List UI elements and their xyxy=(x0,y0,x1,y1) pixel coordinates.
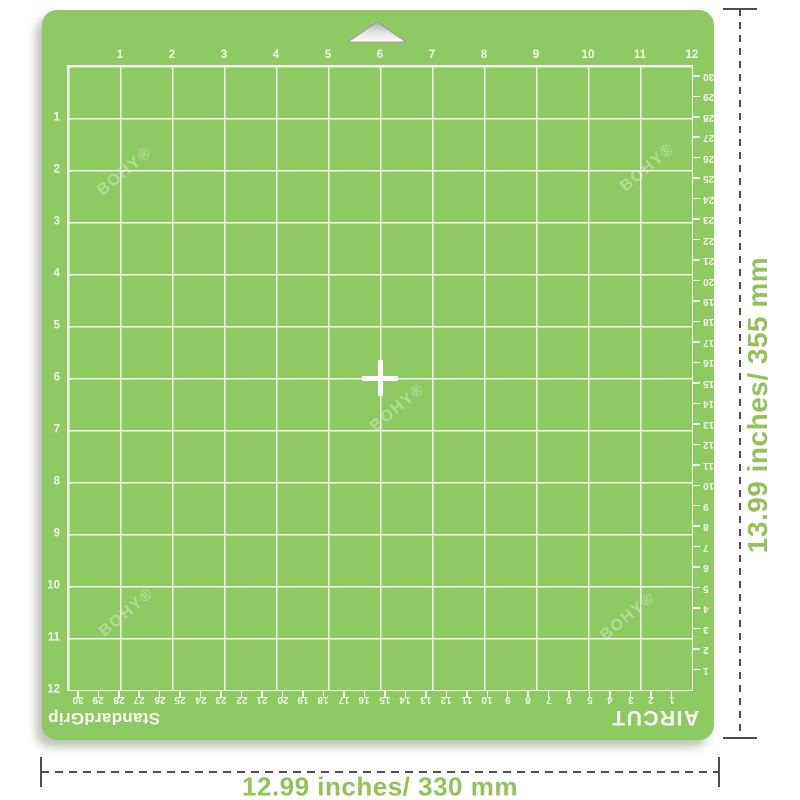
height-dimension-endcap xyxy=(723,737,757,739)
cm-tick xyxy=(692,444,700,446)
bottom-cm-label: 28 xyxy=(113,694,124,704)
top-ruler-label: 1 xyxy=(117,50,123,62)
left-ruler-label: 10 xyxy=(47,580,60,592)
bottom-cm-label: 3 xyxy=(628,694,634,704)
cm-tick xyxy=(692,485,700,487)
top-ruler-label: 6 xyxy=(377,50,383,62)
right-cm-label: 17 xyxy=(703,337,714,347)
bottom-cm-label: 7 xyxy=(546,694,552,704)
cm-tick xyxy=(692,300,700,302)
grip-type-label: StandardGrip xyxy=(48,708,160,728)
right-cm-label: 8 xyxy=(703,521,709,531)
right-cm-label: 30 xyxy=(703,71,714,81)
cm-tick xyxy=(692,525,700,527)
bottom-cm-label: 10 xyxy=(482,694,493,704)
right-cm-label: 1 xyxy=(703,665,709,675)
right-cm-label: 22 xyxy=(703,235,714,245)
left-ruler-label: 4 xyxy=(54,268,60,280)
bottom-cm-label: 20 xyxy=(277,694,288,704)
cm-tick xyxy=(692,321,700,323)
right-cm-label: 3 xyxy=(703,624,709,634)
right-cm-label: 15 xyxy=(703,378,714,388)
top-ruler-label: 12 xyxy=(686,50,699,62)
bottom-cm-label: 17 xyxy=(338,694,349,704)
right-cm-label: 5 xyxy=(703,583,709,593)
product-image: 1234567891011121234567891011121234567891… xyxy=(0,0,800,800)
top-ruler-label: 8 xyxy=(481,50,487,62)
width-dimension-label: 12.99 inches/ 330 mm xyxy=(242,772,518,800)
cm-tick xyxy=(692,280,700,282)
bottom-cm-label: 16 xyxy=(359,694,370,704)
cm-tick xyxy=(692,382,700,384)
bottom-cm-label: 19 xyxy=(297,694,308,704)
center-cross-icon xyxy=(378,360,383,396)
bottom-cm-label: 9 xyxy=(505,694,511,704)
cm-tick xyxy=(692,648,700,650)
bottom-cm-label: 30 xyxy=(72,694,83,704)
bottom-cm-label: 8 xyxy=(525,694,531,704)
left-ruler-label: 11 xyxy=(48,632,60,644)
right-cm-label: 16 xyxy=(703,357,714,367)
cutting-mat: 1234567891011121234567891011121234567891… xyxy=(42,10,714,740)
brand-logo: AIRCUT xyxy=(611,705,699,729)
right-cm-label: 12 xyxy=(703,439,714,449)
bottom-cm-label: 4 xyxy=(607,694,613,704)
right-cm-label: 14 xyxy=(703,398,714,408)
top-ruler-label: 9 xyxy=(533,50,539,62)
left-ruler-label: 2 xyxy=(54,164,60,176)
top-ruler-label: 7 xyxy=(429,50,435,62)
height-dimension-line xyxy=(739,9,741,738)
cm-tick xyxy=(692,464,700,466)
bottom-cm-label: 12 xyxy=(441,694,452,704)
left-ruler-label: 3 xyxy=(54,216,60,228)
cm-tick xyxy=(692,75,700,77)
left-ruler-label: 6 xyxy=(54,372,60,384)
top-ruler-label: 11 xyxy=(634,50,646,62)
right-cm-label: 27 xyxy=(703,132,714,142)
left-ruler-label: 1 xyxy=(54,112,60,124)
bottom-cm-label: 1 xyxy=(669,694,675,704)
alignment-notch-icon xyxy=(345,19,409,45)
bottom-cm-label: 26 xyxy=(154,694,165,704)
top-ruler-label: 3 xyxy=(221,50,227,62)
cm-tick xyxy=(692,607,700,609)
cm-tick xyxy=(692,157,700,159)
cm-tick xyxy=(692,505,700,507)
cm-tick xyxy=(692,239,700,241)
mat-grid: 1234567891011121234567891011121234567891… xyxy=(67,65,693,691)
cm-tick xyxy=(692,362,700,364)
bottom-cm-label: 2 xyxy=(648,694,654,704)
bottom-cm-label: 18 xyxy=(318,694,329,704)
top-ruler-label: 10 xyxy=(582,50,595,62)
cm-tick xyxy=(692,218,700,220)
bottom-cm-label: 27 xyxy=(134,694,145,704)
right-cm-label: 20 xyxy=(703,276,714,286)
bottom-cm-label: 24 xyxy=(195,694,206,704)
cm-tick xyxy=(692,96,700,98)
cm-tick xyxy=(692,177,700,179)
bottom-cm-label: 14 xyxy=(400,694,411,704)
right-cm-label: 28 xyxy=(703,112,714,122)
bottom-cm-label: 11 xyxy=(462,694,473,704)
right-cm-label: 23 xyxy=(703,214,714,224)
top-ruler-label: 2 xyxy=(169,50,175,62)
top-ruler-label: 4 xyxy=(273,50,279,62)
cm-tick xyxy=(692,546,700,548)
cm-tick xyxy=(692,259,700,261)
bottom-cm-label: 21 xyxy=(257,694,268,704)
bottom-cm-label: 22 xyxy=(236,694,247,704)
right-cm-label: 13 xyxy=(703,419,714,429)
bottom-cm-label: 23 xyxy=(216,694,227,704)
right-cm-label: 26 xyxy=(703,153,714,163)
cm-tick xyxy=(692,587,700,589)
right-cm-label: 4 xyxy=(703,603,709,613)
bottom-cm-label: 15 xyxy=(379,694,390,704)
cm-tick xyxy=(692,423,700,425)
right-cm-label: 2 xyxy=(703,644,709,654)
bottom-cm-label: 25 xyxy=(175,694,186,704)
cm-tick xyxy=(692,198,700,200)
right-cm-label: 21 xyxy=(703,255,714,265)
cm-tick xyxy=(692,403,700,405)
left-ruler-label: 9 xyxy=(54,528,60,540)
right-cm-label: 10 xyxy=(703,480,714,490)
right-cm-label: 7 xyxy=(703,542,709,552)
bottom-cm-label: 13 xyxy=(420,694,431,704)
right-cm-label: 29 xyxy=(703,91,714,101)
bottom-cm-label: 5 xyxy=(587,694,593,704)
right-cm-label: 24 xyxy=(703,194,714,204)
left-ruler-label: 7 xyxy=(54,424,60,436)
right-cm-label: 25 xyxy=(703,173,714,183)
bottom-cm-label: 6 xyxy=(566,694,572,704)
top-ruler-label: 5 xyxy=(325,50,331,62)
left-ruler-label: 8 xyxy=(54,476,60,488)
bottom-cm-label: 29 xyxy=(93,694,104,704)
height-dimension-label: 13.99 inches/ 355 mm xyxy=(742,257,774,553)
right-cm-label: 9 xyxy=(703,501,709,511)
width-dimension-endcap xyxy=(718,757,720,787)
right-cm-label: 11 xyxy=(703,460,714,470)
cm-tick xyxy=(692,566,700,568)
cm-tick xyxy=(692,628,700,630)
cm-tick xyxy=(692,116,700,118)
right-cm-label: 19 xyxy=(703,296,714,306)
right-cm-label: 18 xyxy=(703,316,714,326)
cm-tick xyxy=(692,669,700,671)
cm-tick xyxy=(692,136,700,138)
left-ruler-label: 12 xyxy=(47,684,60,696)
right-cm-label: 6 xyxy=(703,562,709,572)
cm-tick xyxy=(692,341,700,343)
left-ruler-label: 5 xyxy=(54,320,60,332)
